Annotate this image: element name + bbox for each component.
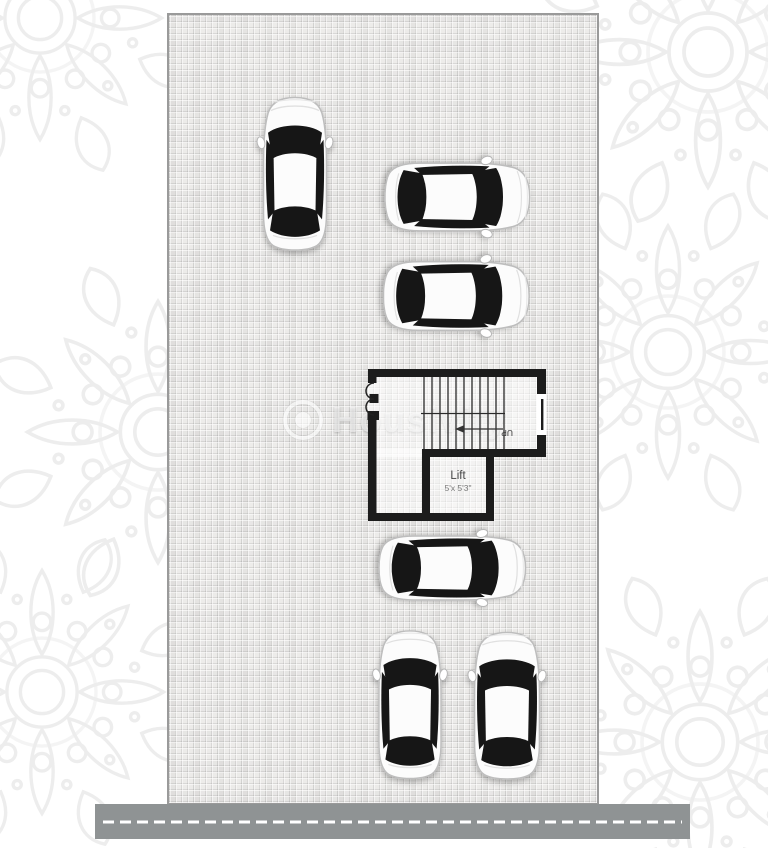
lift-floor xyxy=(368,449,494,521)
window xyxy=(537,394,547,435)
up-label: UP xyxy=(501,428,513,438)
plan-overlay: UP xyxy=(0,0,768,848)
plan-canvas: Housivity xyxy=(0,0,768,848)
lift-dimensions: 5'x 5'3" xyxy=(444,483,471,493)
car-top-view xyxy=(383,253,529,338)
car-top-view xyxy=(467,632,548,779)
car-top-view xyxy=(256,97,334,250)
car-top-view xyxy=(371,631,448,779)
lift-label: Lift xyxy=(450,470,466,482)
car-top-view xyxy=(385,155,530,239)
road xyxy=(95,804,690,839)
road-center-line xyxy=(103,820,682,823)
car-top-view xyxy=(379,528,526,607)
staircase-lift-structure: UP xyxy=(366,369,547,521)
